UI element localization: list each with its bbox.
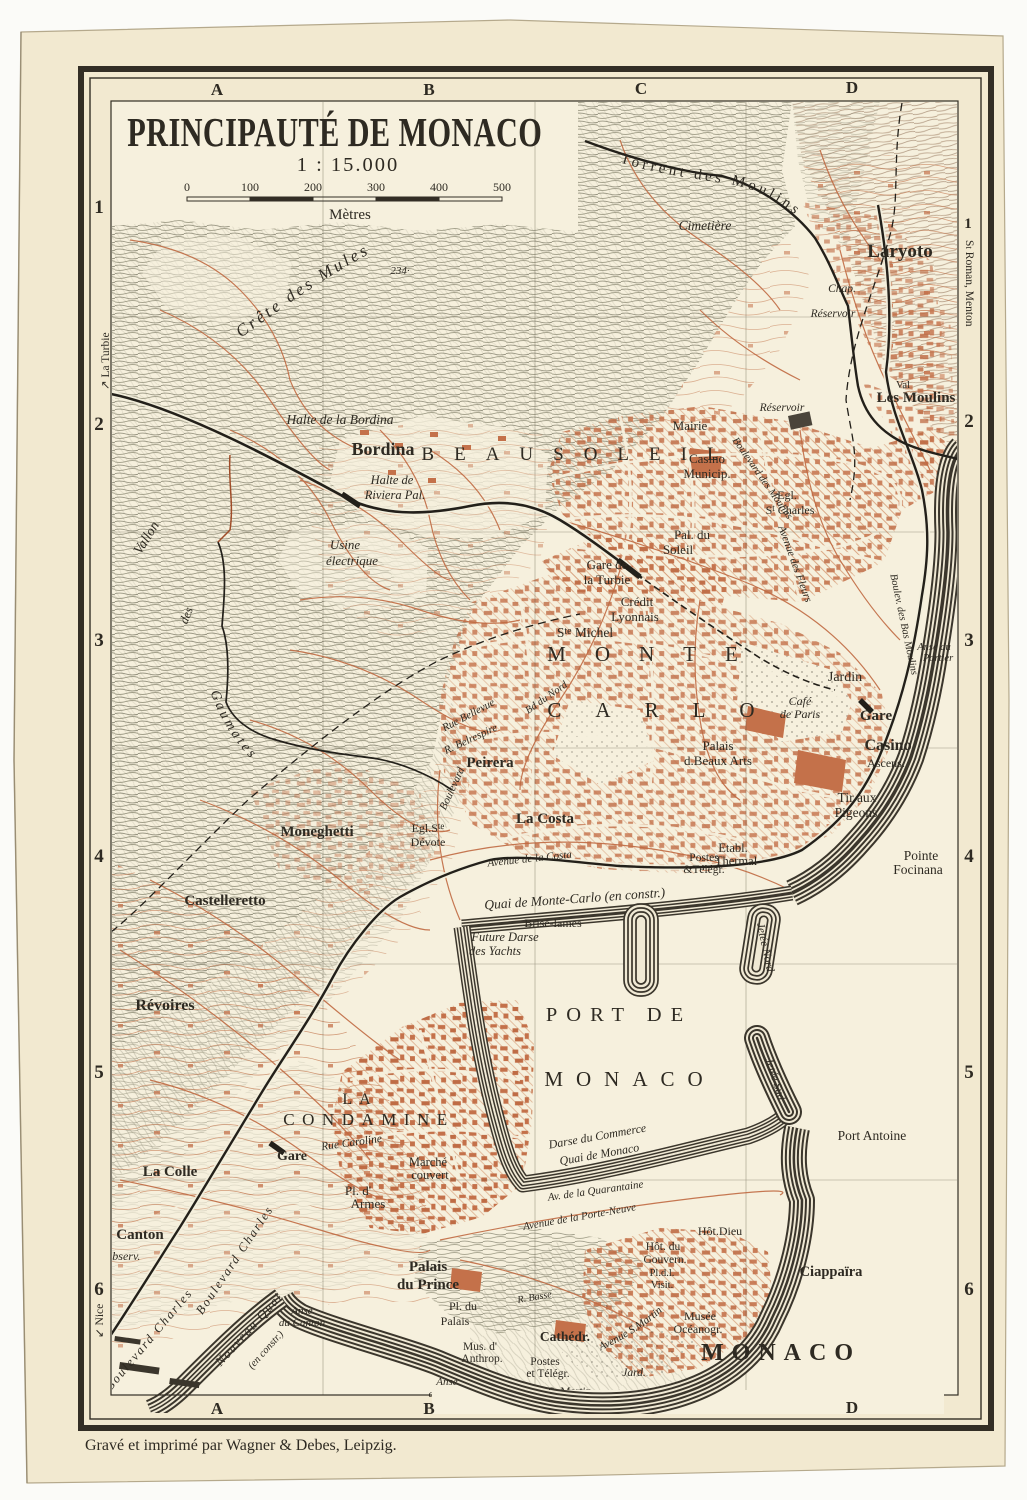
svg-text:couvert: couvert <box>411 1168 449 1182</box>
svg-text:Lyonnais: Lyonnais <box>611 609 659 624</box>
svg-text:Gouvern.: Gouvern. <box>643 1254 686 1266</box>
svg-text:Visit.: Visit. <box>651 1280 673 1291</box>
svg-text:Jard.: Jard. <box>622 1367 646 1379</box>
svg-text:de Paris: de Paris <box>780 707 821 721</box>
svg-text:↗ La Turbie: ↗ La Turbie <box>100 332 112 390</box>
svg-text:Gare: Gare <box>860 708 893 724</box>
svg-text:Océanogr.: Océanogr. <box>674 1322 723 1336</box>
svg-text:Municip.: Municip. <box>683 466 730 481</box>
svg-text:Réservoir: Réservoir <box>810 308 856 320</box>
svg-text:CONDAMINE: CONDAMINE <box>283 1110 454 1129</box>
svg-text:3: 3 <box>94 630 104 651</box>
svg-text:3: 3 <box>964 630 974 651</box>
svg-text:D: D <box>846 1398 858 1417</box>
svg-text:4: 4 <box>964 846 974 867</box>
svg-text:500: 500 <box>493 180 511 194</box>
svg-text:Postes: Postes <box>530 1356 560 1368</box>
svg-text:Tir aux: Tir aux <box>838 790 877 805</box>
svg-text:Mètres: Mètres <box>329 207 371 223</box>
svg-text:2: 2 <box>964 411 974 432</box>
svg-text:Jardin: Jardin <box>828 670 862 685</box>
svg-text:Réservoir: Réservoir <box>759 402 805 414</box>
svg-text:Portier: Portier <box>922 653 954 664</box>
svg-text:Gare: Gare <box>277 1149 307 1164</box>
svg-text:&Télégr.: &Télégr. <box>683 864 724 876</box>
svg-text:des Yachts: des Yachts <box>469 944 521 958</box>
svg-text:B: B <box>423 1399 434 1418</box>
svg-text:Riviera Pal.: Riviera Pal. <box>364 488 425 502</box>
svg-text:LA: LA <box>342 1091 377 1108</box>
svg-text:Castelleretto: Castelleretto <box>184 893 265 909</box>
svg-text:PRINCIPAUTÉ DE MONACO: PRINCIPAUTÉ DE MONACO <box>127 110 542 155</box>
svg-text:2: 2 <box>94 414 104 435</box>
svg-text:200: 200 <box>304 180 322 194</box>
svg-text:MONACO: MONACO <box>544 1067 715 1091</box>
svg-text:1: 1 <box>964 216 972 232</box>
svg-text:Peirera: Peirera <box>466 755 514 771</box>
svg-text:Halte de: Halte de <box>370 473 414 487</box>
svg-text:et Télégr.: et Télégr. <box>526 1368 569 1380</box>
svg-text:100: 100 <box>241 180 259 194</box>
svg-text:D: D <box>846 78 858 97</box>
svg-text:Ascens.: Ascens. <box>867 756 905 770</box>
svg-text:Révoires: Révoires <box>135 997 194 1014</box>
svg-text:Gare de: Gare de <box>587 557 628 572</box>
svg-text:Laryoto: Laryoto <box>867 241 932 262</box>
svg-text:MONACO: MONACO <box>701 1340 861 1366</box>
svg-text:1 : 15.000: 1 : 15.000 <box>297 154 400 176</box>
svg-text:Brise-lames: Brise-lames <box>524 916 582 930</box>
svg-text:0: 0 <box>184 180 190 194</box>
svg-text:Marché: Marché <box>409 1155 448 1169</box>
svg-text:1: 1 <box>94 197 104 218</box>
svg-text:PORT DE: PORT DE <box>546 1004 692 1026</box>
svg-text:Canton: Canton <box>116 1227 164 1243</box>
svg-text:Palais: Palais <box>409 1259 447 1275</box>
svg-text:Pl.d.l.: Pl.d.l. <box>650 1268 675 1279</box>
svg-text:B: B <box>423 80 434 99</box>
svg-text:Armes: Armes <box>351 1196 386 1211</box>
svg-text:Casino: Casino <box>689 451 725 466</box>
svg-text:Hôt.Dieu: Hôt.Dieu <box>698 1224 742 1238</box>
svg-text:6: 6 <box>94 1279 104 1300</box>
svg-text:d.Beaux Arts: d.Beaux Arts <box>684 753 752 768</box>
svg-text:5: 5 <box>964 1062 974 1083</box>
svg-text:A: A <box>211 1399 224 1418</box>
svg-text:Casino: Casino <box>864 737 911 754</box>
svg-text:A: A <box>211 80 224 99</box>
svg-text:du Prince: du Prince <box>397 1277 459 1293</box>
svg-text:5: 5 <box>94 1062 104 1083</box>
svg-text:Hôt. du: Hôt. du <box>646 1241 681 1253</box>
svg-text:La Colle: La Colle <box>143 1164 198 1180</box>
svg-text:234·: 234· <box>390 265 410 277</box>
svg-text:Pl. du: Pl. du <box>449 1299 477 1313</box>
svg-text:Cimetière: Cimetière <box>679 218 732 233</box>
svg-text:Pigeons: Pigeons <box>835 805 878 820</box>
svg-text:la Turbie: la Turbie <box>584 572 631 587</box>
svg-text:Etabl.: Etabl. <box>718 841 748 855</box>
svg-text:Anthrop.: Anthrop. <box>461 1353 502 1365</box>
svg-text:Cathédr.: Cathédr. <box>540 1329 590 1344</box>
svg-text:La Costa: La Costa <box>516 811 574 827</box>
svg-text:↙ Nice: ↙ Nice <box>94 1304 106 1338</box>
svg-text:C: C <box>635 79 647 98</box>
svg-text:Café: Café <box>789 694 812 708</box>
svg-text:300: 300 <box>367 180 385 194</box>
svg-text:électrique: électrique <box>326 553 378 568</box>
svg-text:Anse du: Anse du <box>916 642 951 653</box>
svg-text:Pal. du: Pal. du <box>674 527 711 542</box>
svg-text:Palais: Palais <box>702 738 733 753</box>
svg-text:Mairie: Mairie <box>673 418 708 433</box>
svg-text:6: 6 <box>964 1279 974 1300</box>
svg-text:Focinana: Focinana <box>893 862 943 877</box>
svg-text:4: 4 <box>94 846 104 867</box>
svg-text:Anse: Anse <box>435 1376 458 1388</box>
svg-text:Ciappaïra: Ciappaïra <box>800 1264 864 1280</box>
svg-text:du Canton: du Canton <box>279 1317 326 1329</box>
svg-text:MONTE: MONTE <box>547 642 767 666</box>
svg-text:Future Darse: Future Darse <box>470 930 539 944</box>
svg-text:Crédit: Crédit <box>621 594 654 609</box>
svg-text:Palais: Palais <box>441 1314 470 1328</box>
svg-text:Les Moulins: Les Moulins <box>877 390 956 406</box>
svg-text:Moneghetti: Moneghetti <box>280 824 353 840</box>
svg-text:Musée: Musée <box>684 1309 716 1323</box>
svg-text:Chap.: Chap. <box>828 283 856 295</box>
svg-text:Soleil: Soleil <box>663 542 694 557</box>
svg-text:St Roman, Menton: St Roman, Menton <box>963 240 975 327</box>
svg-text:Pointe: Pointe <box>904 848 939 863</box>
svg-text:Mus. d': Mus. d' <box>463 1341 497 1353</box>
svg-text:Bordina: Bordina <box>351 439 414 459</box>
svg-text:CARLO: CARLO <box>547 698 788 722</box>
svg-text:Anse: Anse <box>290 1305 313 1317</box>
svg-text:400: 400 <box>430 180 448 194</box>
svg-text:Dévote: Dévote <box>411 835 446 849</box>
svg-text:Usine: Usine <box>330 537 361 552</box>
svg-text:Gravé et imprimé par Wagner &: Gravé et imprimé par Wagner & Debes, Lei… <box>85 1437 397 1454</box>
svg-text:Postes: Postes <box>689 852 719 864</box>
svg-text:Port Antoine: Port Antoine <box>838 1128 907 1143</box>
svg-text:Halte de la Bordina: Halte de la Bordina <box>285 412 393 427</box>
